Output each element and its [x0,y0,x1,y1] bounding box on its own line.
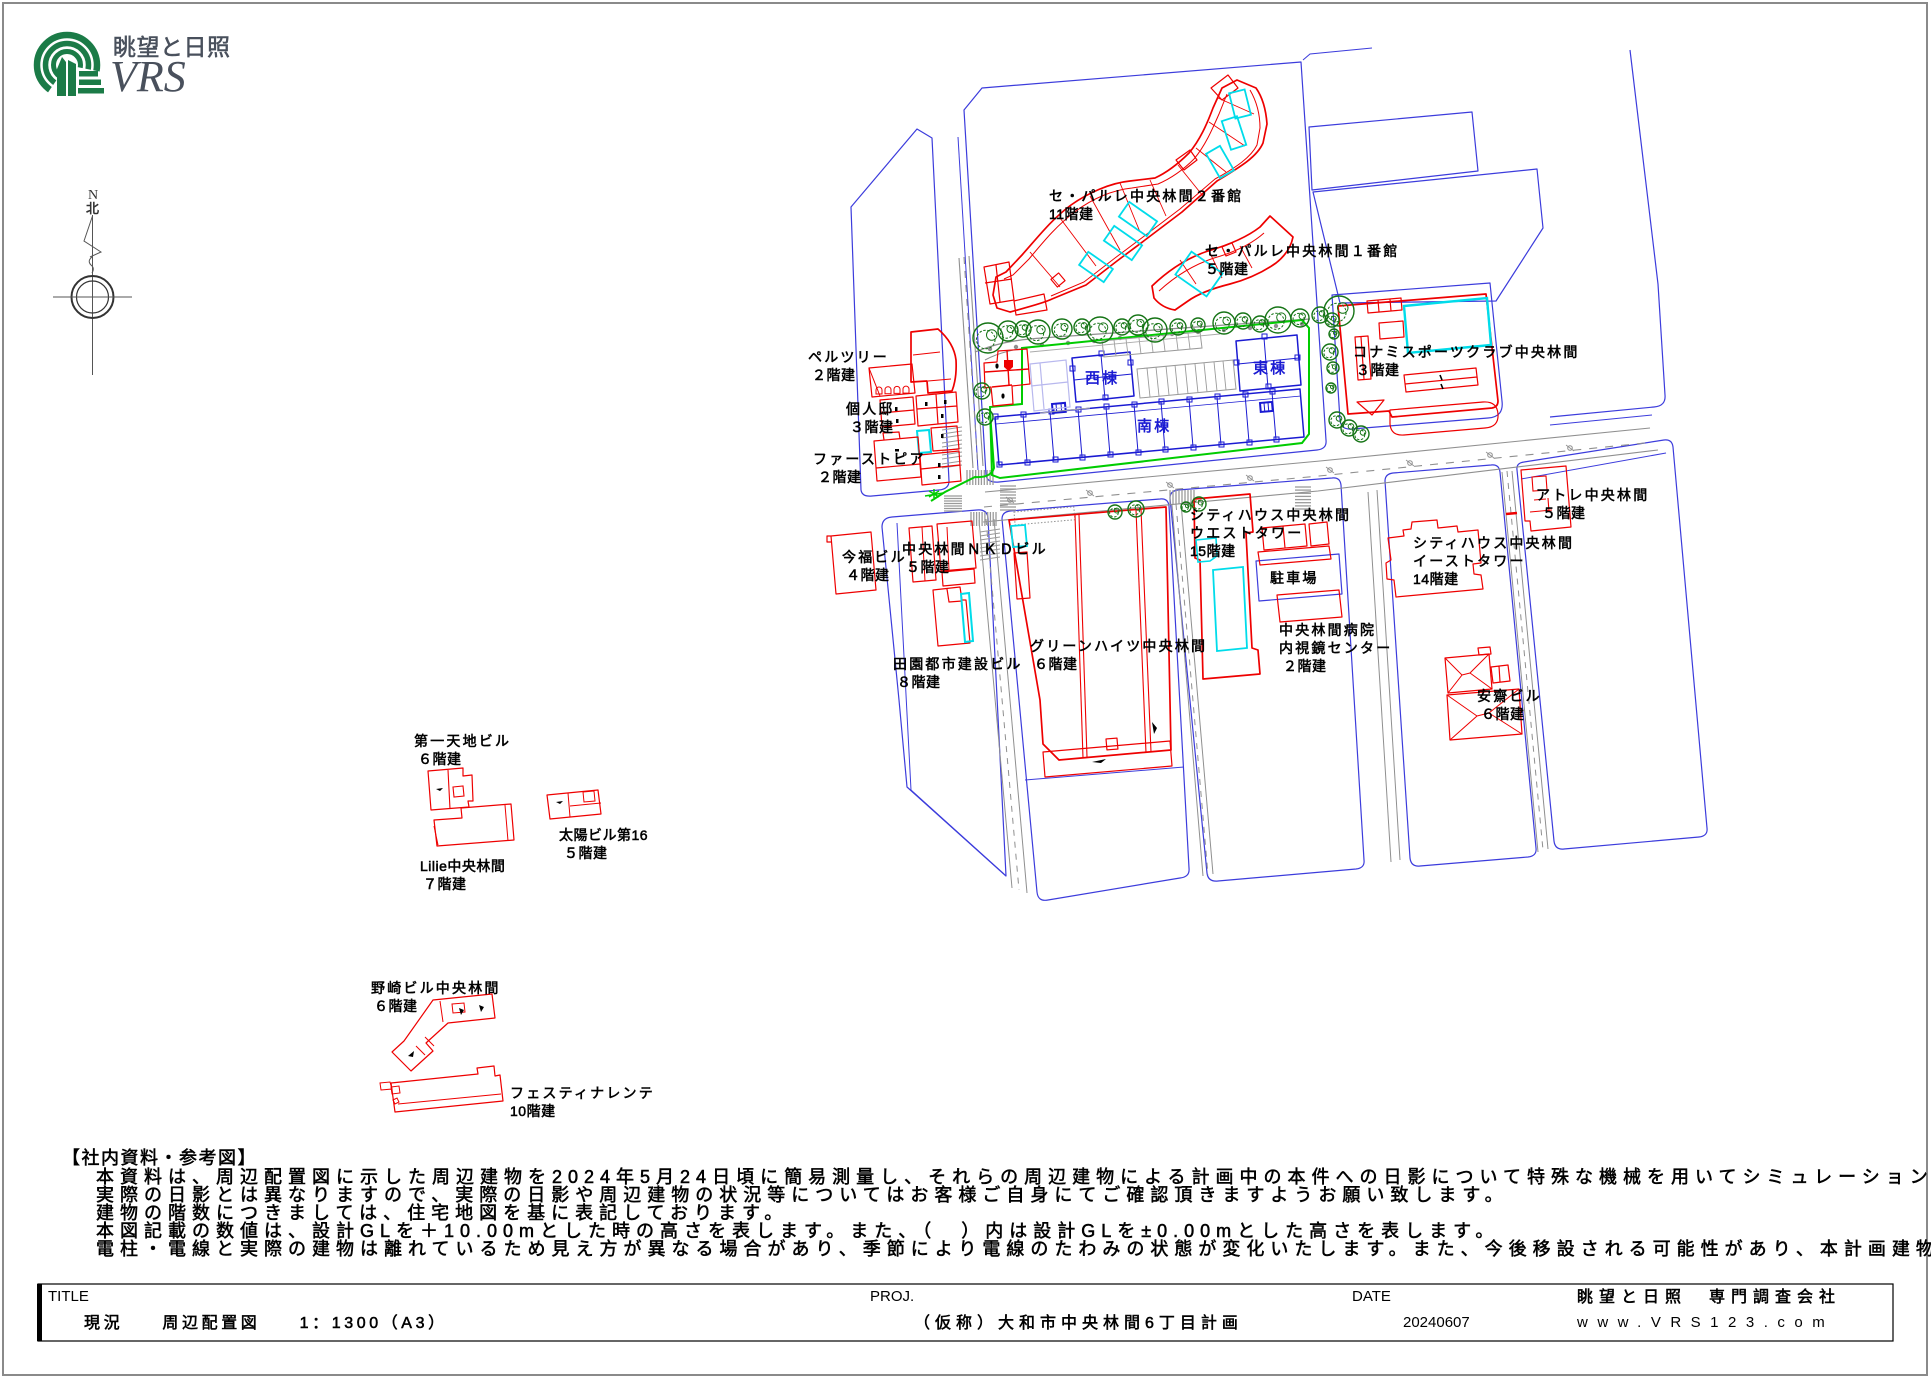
svg-text:５階建: ５階建 [1205,261,1249,277]
svg-text:シティハウス中央林間: シティハウス中央林間 [1413,535,1574,551]
svg-text:実際の日影とは異なりますので、実際の日影や周辺建物の状況等に: 実際の日影とは異なりますので、実際の日影や周辺建物の状況等についてはお客様ご自身… [96,1185,1509,1205]
svg-text:PROJ.: PROJ. [870,1288,914,1305]
svg-text:８階建: ８階建 [897,674,941,690]
svg-text:中央林間ＮＫＤビル: 中央林間ＮＫＤビル [902,541,1048,557]
svg-text:（仮称）大和市中央林間6丁目計画: （仮称）大和市中央林間6丁目計画 [914,1314,1243,1332]
svg-text:TITLE: TITLE [48,1288,89,1305]
svg-text:14階建: 14階建 [1413,571,1459,587]
svg-text:３階建: ３階建 [1356,362,1400,378]
svg-text:東棟: 東棟 [1253,360,1287,377]
svg-text:11階建: 11階建 [1049,206,1094,222]
svg-text:現況 周辺配置図 1：1300（A3）: 現況 周辺配置図 1：1300（A3） [84,1314,448,1332]
svg-text:２階建: ２階建 [1283,658,1327,674]
svg-text:セ・パルレ中央林間１番館: セ・パルレ中央林間１番館 [1205,243,1399,259]
svg-text:内視鏡センター: 内視鏡センター [1279,640,1392,656]
svg-text:個人邸: 個人邸 [846,401,895,417]
svg-text:南棟: 南棟 [1137,418,1171,435]
svg-text:【社内資料・参考図】: 【社内資料・参考図】 [62,1148,257,1168]
svg-text:セ・パルレ中央林間２番館: セ・パルレ中央林間２番館 [1049,188,1243,204]
svg-text:シティハウス中央林間: シティハウス中央林間 [1190,507,1351,523]
svg-text:グリーンハイツ中央林間: グリーンハイツ中央林間 [1030,638,1207,654]
svg-text:ペルツリー: ペルツリー [808,349,889,365]
svg-text:４階建: ４階建 [846,567,890,583]
svg-text:10階建: 10階建 [510,1103,556,1119]
svg-text:コナミスポーツクラブ中央林間: コナミスポーツクラブ中央林間 [1353,344,1580,360]
svg-text:２階建: ２階建 [818,469,862,485]
svg-text:５階建: ５階建 [906,559,950,575]
svg-text:フェスティナレンテ: フェスティナレンテ [510,1085,655,1101]
svg-text:15階建: 15階建 [1190,543,1236,559]
svg-text:北: 北 [86,201,99,216]
svg-text:西棟: 西棟 [1085,370,1119,387]
svg-text:Lilie中央林間: Lilie中央林間 [420,858,505,874]
svg-text:www.VRS123.com: www.VRS123.com [1576,1314,1834,1331]
svg-text:今福ビル: 今福ビル [842,549,907,565]
svg-text:ウエストタワー: ウエストタワー [1190,525,1303,541]
svg-text:２階建: ２階建 [812,367,856,383]
svg-text:中央林間病院: 中央林間病院 [1279,622,1376,638]
svg-text:VRS: VRS [110,52,186,101]
svg-text:３階建: ３階建 [850,419,894,435]
svg-text:電柱・電線と実際の建物は離れているため見え方が異なる場合があ: 電柱・電線と実際の建物は離れているため見え方が異なる場合があり、季節により電線の… [96,1239,1931,1259]
svg-text:第一天地ビル: 第一天地ビル [414,733,511,749]
svg-text:建物の階数につきましては、住宅地図を基に表記しております。: 建物の階数につきましては、住宅地図を基に表記しております。 [96,1203,788,1223]
svg-text:６階建: ６階建 [1034,656,1078,672]
svg-text:野崎ビル中央林間: 野崎ビル中央林間 [371,980,501,996]
svg-text:６階建: ６階建 [374,998,418,1014]
svg-text:田園都市建設ビル: 田園都市建設ビル [893,656,1023,672]
svg-text:駐車場: 駐車場 [1270,570,1319,586]
svg-text:20240607: 20240607 [1403,1314,1470,1331]
svg-text:６階建: ６階建 [418,751,462,767]
svg-text:太陽ビル第16: 太陽ビル第16 [559,827,648,843]
svg-text:ファーストピア: ファーストピア [813,451,926,467]
svg-text:本資料は、周辺配置図に示した周辺建物を2024年5月24日頃: 本資料は、周辺配置図に示した周辺建物を2024年5月24日頃に簡易測量し、それら… [96,1167,1931,1187]
svg-text:イーストタワー: イーストタワー [1413,553,1526,569]
svg-text:DATE: DATE [1352,1288,1391,1305]
svg-text:７階建: ７階建 [423,876,467,892]
svg-text:安齋ビル: 安齋ビル [1477,688,1542,704]
svg-text:本図記載の数値は、設計GLを＋10.00mとした時の高さを表: 本図記載の数値は、設計GLを＋10.00mとした時の高さを表します。また、（ ）… [96,1221,1499,1241]
svg-text:５階建: ５階建 [1542,505,1586,521]
svg-text:眺望と日照 専門調査会社: 眺望と日照 専門調査会社 [1577,1288,1841,1306]
svg-text:５階建: ５階建 [564,845,608,861]
svg-text:６階建: ６階建 [1481,706,1525,722]
svg-text:アトレ中央林間: アトレ中央林間 [1536,487,1649,503]
